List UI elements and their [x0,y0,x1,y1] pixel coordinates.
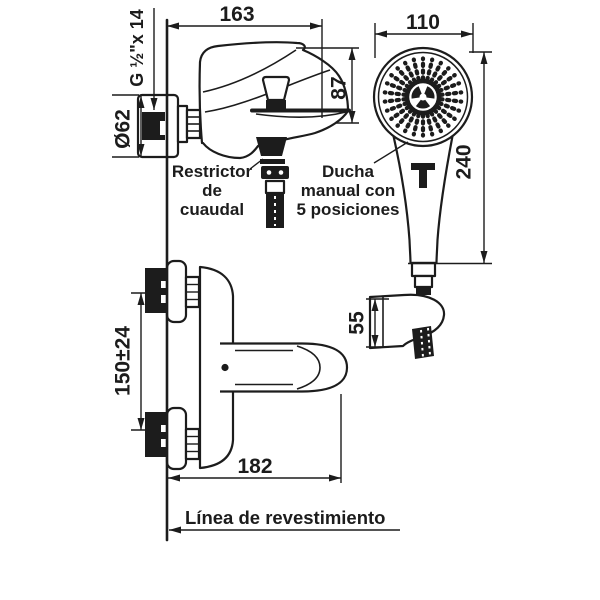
technical-diagram-page: 163 87 Ø62 G ½"x 14 110 240 55 [0,0,600,600]
dim-escutcheon-diameter: Ø62 [112,95,141,157]
restrictor-label-line2: de [202,181,222,200]
wall-line-label-text: Línea de revestimiento [185,507,385,528]
hose-nut-dot [279,170,284,175]
dim-240-label: 240 [453,144,476,179]
hose-coupling [266,181,284,193]
holder-bracket [370,295,444,348]
diverter-knob [263,77,289,100]
shower-label-line3: 5 posiciones [297,200,400,219]
dim-supply-spacing: 150±24 [112,293,151,430]
shower-label-line1: Ducha [322,162,375,181]
hose-nut-dot [267,170,272,175]
dim-55-label: 55 [346,311,369,335]
wall-finish-line-label: Línea de revestimiento [169,507,400,530]
dim-87-label: 87 [328,76,351,99]
mixer-top-view [145,261,347,469]
shower-mixer-installation-diagram: 163 87 Ø62 G ½"x 14 110 240 55 [0,0,600,600]
escutcheon-plate-top [167,261,186,322]
handle-hose-end [416,287,431,295]
shower-handle [394,136,453,263]
shower-outlet [256,137,287,156]
dim-182-label: 182 [237,455,272,478]
handle-connector [415,276,432,287]
supply-block-bottom [145,412,167,457]
hose-nut [261,166,289,179]
diverter-base-band [266,100,286,109]
escutcheon-plate-bottom [167,408,186,469]
restrictor-label-line1: Restrictor [172,162,253,181]
dim-150-label: 150±24 [112,326,135,396]
dim-diameter-label: Ø62 [112,109,135,149]
thread-connector [178,106,200,142]
hand-shower-label: Ducha manual con 5 posiciones [297,142,408,219]
flow-restrictor-label: Restrictor de cuaudal [172,159,263,219]
dim-110-label: 110 [406,11,440,34]
shower-emblem-center [420,94,427,101]
shower-label-line2: manual con [301,181,395,200]
thread-connector-top [186,277,199,307]
outlet-strip [260,159,285,164]
cartridge-dot [221,364,228,371]
supply-block-top [145,268,167,313]
shower-holder [370,295,444,359]
thread-spec-label: G ½"x 14 [127,9,147,87]
thread-connector-bottom [186,429,199,459]
restrictor-label-line3: cuaudal [180,200,244,219]
handle-mark-stem [419,166,427,188]
dim-163-label: 163 [219,3,254,26]
handle-connector-nut [412,263,435,276]
